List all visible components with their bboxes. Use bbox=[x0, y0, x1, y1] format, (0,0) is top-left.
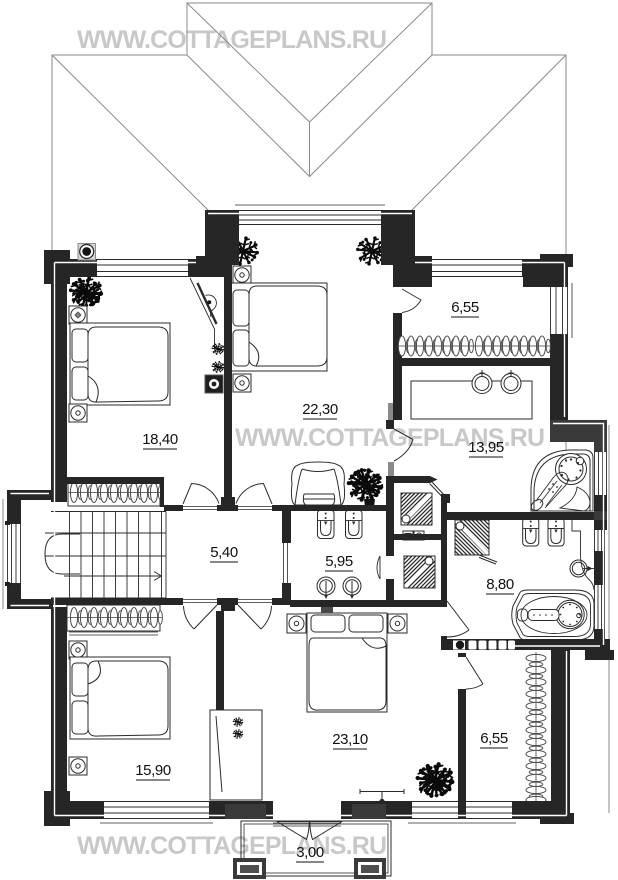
svg-text:3,00: 3,00 bbox=[296, 844, 324, 861]
svg-text:5,95: 5,95 bbox=[325, 553, 353, 570]
svg-text:22,30: 22,30 bbox=[302, 401, 338, 418]
svg-text:6,55: 6,55 bbox=[451, 299, 479, 316]
svg-text:6,55: 6,55 bbox=[480, 730, 508, 747]
svg-text:23,10: 23,10 bbox=[332, 731, 368, 748]
svg-text:13,95: 13,95 bbox=[468, 439, 504, 456]
svg-text:18,40: 18,40 bbox=[142, 431, 178, 448]
svg-text:8,80: 8,80 bbox=[486, 576, 514, 593]
svg-text:5,40: 5,40 bbox=[210, 544, 238, 561]
svg-text:WWW.COTTAGEPLANS.RU: WWW.COTTAGEPLANS.RU bbox=[77, 832, 386, 860]
svg-text:15,90: 15,90 bbox=[135, 762, 171, 779]
svg-text:WWW.COTTAGEPLANS.RU: WWW.COTTAGEPLANS.RU bbox=[77, 26, 386, 54]
